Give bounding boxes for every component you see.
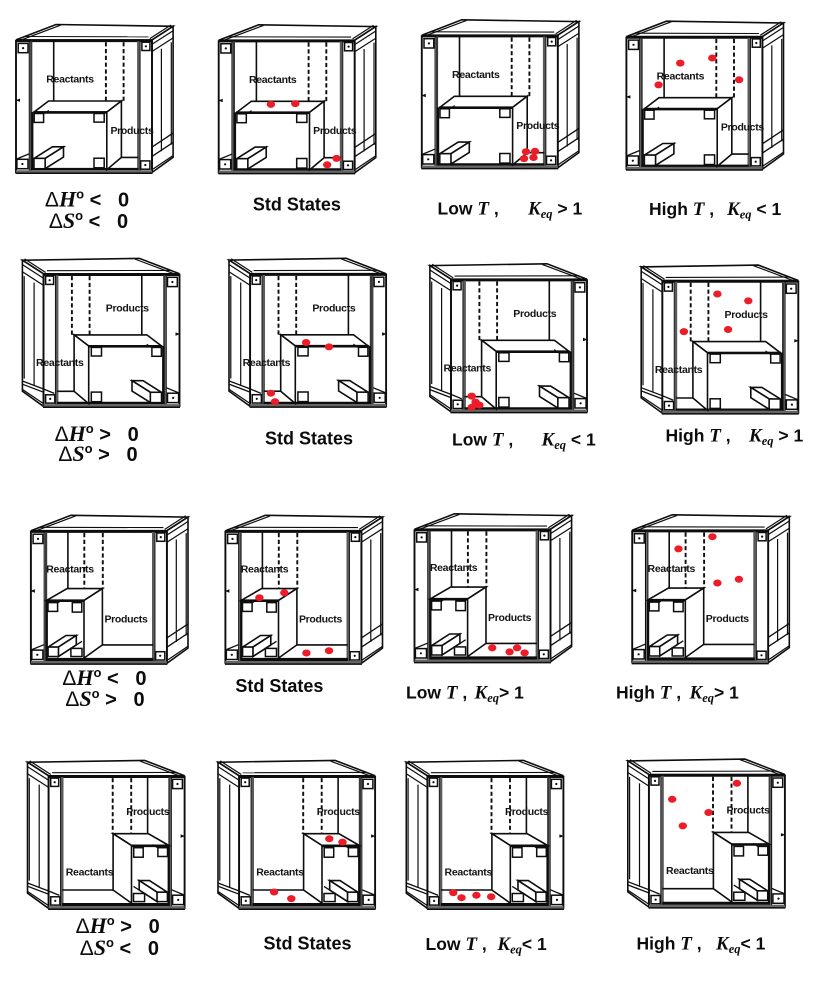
svg-text:Std States: Std States: [265, 429, 353, 449]
svg-text:ΔSo > 0: ΔSo > 0: [58, 441, 137, 466]
svg-text:Products: Products: [488, 612, 532, 624]
svg-text:Products: Products: [313, 125, 357, 137]
svg-text:Std States: Std States: [253, 194, 341, 214]
svg-text:Reactants: Reactants: [46, 563, 94, 575]
svg-text:Products: Products: [706, 613, 750, 625]
svg-text:ΔHo > 0: ΔHo > 0: [76, 913, 160, 938]
svg-text:Products: Products: [104, 614, 148, 626]
svg-text:Products: Products: [516, 120, 560, 132]
svg-text:Low T ,: Low T ,: [452, 430, 513, 451]
svg-text:Products: Products: [721, 122, 765, 134]
svg-text:Reactants: Reactants: [655, 364, 703, 376]
svg-text:Reactants: Reactants: [46, 74, 94, 86]
svg-text:Reactants: Reactants: [241, 563, 289, 575]
svg-text:Std States: Std States: [235, 676, 323, 696]
svg-text:Reactants: Reactants: [66, 867, 114, 879]
svg-text:Products: Products: [126, 806, 170, 818]
svg-text:Reactants: Reactants: [256, 867, 304, 879]
svg-text:High T ,: High T ,: [637, 933, 702, 954]
svg-text:Keq > 1: Keq > 1: [527, 198, 582, 221]
svg-text:Keq> 1: Keq> 1: [474, 683, 525, 706]
svg-text:Reactants: Reactants: [452, 69, 500, 81]
svg-text:Std States: Std States: [263, 933, 351, 953]
svg-text:Products: Products: [106, 302, 150, 314]
svg-text:ΔSo < 0: ΔSo < 0: [80, 935, 159, 960]
svg-text:Reactants: Reactants: [430, 562, 478, 574]
svg-text:Products: Products: [110, 125, 154, 137]
svg-text:Keq< 1: Keq< 1: [715, 933, 766, 956]
svg-text:ΔHo < 0: ΔHo < 0: [45, 187, 129, 212]
svg-text:Reactants: Reactants: [657, 70, 705, 82]
svg-text:Products: Products: [317, 806, 361, 818]
svg-text:High T ,: High T ,: [616, 683, 681, 704]
svg-text:Products: Products: [312, 302, 356, 314]
svg-text:Products: Products: [505, 806, 549, 818]
svg-text:ΔHo < 0: ΔHo < 0: [62, 665, 146, 690]
svg-text:Products: Products: [725, 309, 769, 321]
svg-text:Products: Products: [727, 805, 771, 817]
svg-text:Reactants: Reactants: [444, 363, 492, 375]
svg-text:Keq< 1: Keq< 1: [496, 934, 547, 957]
svg-text:Reactants: Reactants: [445, 867, 493, 879]
svg-text:Reactants: Reactants: [36, 357, 84, 369]
svg-text:Products: Products: [513, 308, 557, 320]
svg-text:Keq > 1: Keq > 1: [748, 426, 803, 449]
svg-text:High T ,: High T ,: [649, 199, 714, 220]
svg-text:Reactants: Reactants: [243, 357, 291, 369]
svg-text:Reactants: Reactants: [666, 865, 714, 877]
svg-text:High T ,: High T ,: [666, 426, 731, 447]
svg-text:ΔSo > 0: ΔSo > 0: [65, 686, 144, 711]
svg-text:Low T ,: Low T ,: [438, 198, 499, 219]
svg-text:Low T ,: Low T ,: [426, 934, 487, 955]
svg-text:Reactants: Reactants: [249, 74, 297, 86]
svg-text:Low T ,: Low T ,: [406, 683, 467, 704]
svg-text:Products: Products: [299, 614, 343, 626]
svg-text:Keq> 1: Keq> 1: [689, 683, 740, 706]
svg-text:Keq < 1: Keq < 1: [541, 430, 596, 453]
svg-text:Reactants: Reactants: [648, 563, 696, 575]
svg-text:ΔSo < 0: ΔSo < 0: [49, 208, 128, 233]
svg-text:Keq < 1: Keq < 1: [726, 199, 781, 222]
